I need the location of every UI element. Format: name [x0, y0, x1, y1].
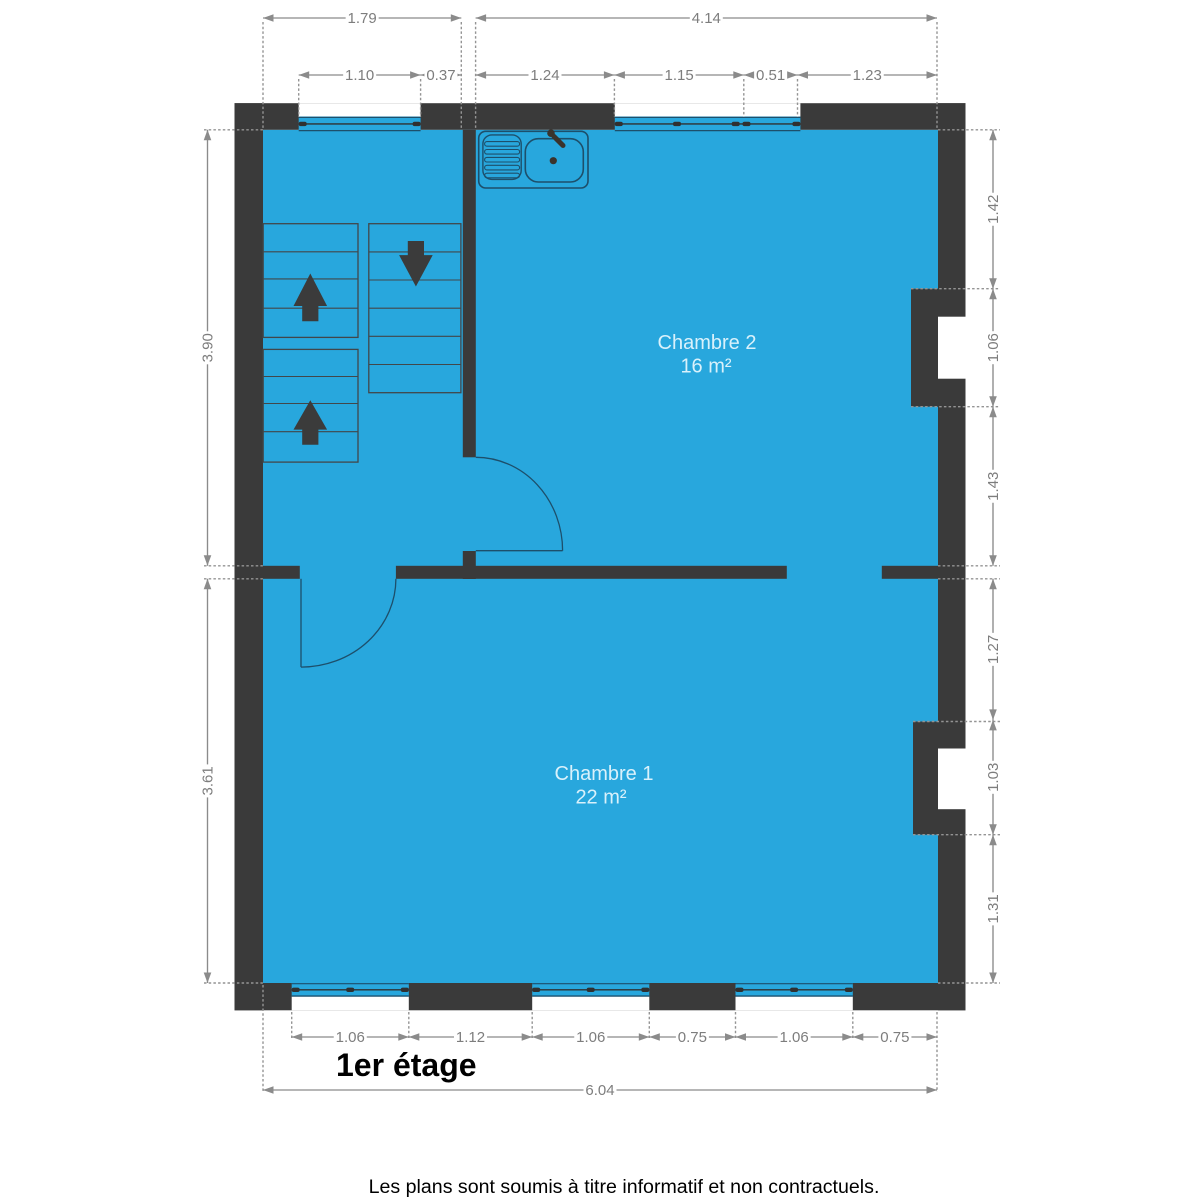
svg-text:22 m²: 22 m²	[575, 787, 626, 809]
svg-text:1.06: 1.06	[985, 333, 1002, 362]
svg-text:Les plans sont soumis à titre: Les plans sont soumis à titre informatif…	[369, 1176, 880, 1198]
svg-text:1.79: 1.79	[348, 10, 377, 27]
svg-text:1.06: 1.06	[780, 1029, 809, 1046]
svg-text:1.12: 1.12	[456, 1029, 485, 1046]
svg-text:3.90: 3.90	[200, 333, 217, 362]
svg-text:Chambre 2: Chambre 2	[658, 332, 757, 354]
svg-text:1.06: 1.06	[336, 1029, 365, 1046]
svg-text:1.27: 1.27	[985, 635, 1002, 664]
svg-text:1.10: 1.10	[345, 67, 374, 84]
svg-text:4.14: 4.14	[692, 10, 721, 27]
svg-text:3.61: 3.61	[200, 766, 217, 795]
svg-text:1.42: 1.42	[985, 195, 1002, 224]
svg-text:1.03: 1.03	[985, 763, 1002, 792]
svg-text:0.75: 0.75	[678, 1029, 707, 1046]
svg-text:1.15: 1.15	[664, 67, 693, 84]
svg-text:1.31: 1.31	[985, 894, 1002, 923]
svg-text:16 m²: 16 m²	[680, 356, 731, 378]
svg-text:6.04: 6.04	[585, 1082, 614, 1099]
svg-text:1.06: 1.06	[576, 1029, 605, 1046]
svg-text:0.37: 0.37	[426, 67, 455, 84]
svg-text:0.51: 0.51	[756, 67, 785, 84]
svg-text:Chambre 1: Chambre 1	[555, 763, 654, 785]
svg-text:0.75: 0.75	[880, 1029, 909, 1046]
svg-text:1er étage: 1er étage	[336, 1047, 477, 1083]
svg-text:1.23: 1.23	[853, 67, 882, 84]
svg-text:1.24: 1.24	[530, 67, 559, 84]
svg-text:1.43: 1.43	[985, 472, 1002, 501]
